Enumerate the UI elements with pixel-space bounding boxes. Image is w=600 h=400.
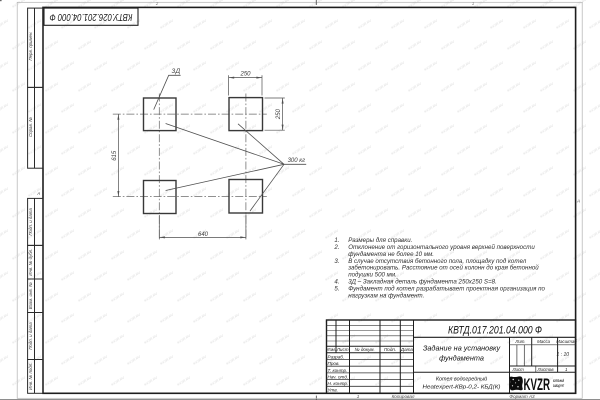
svg-text:Котел водогрейный: Котел водогрейный xyxy=(436,376,487,383)
svg-text:Перв. примен.: Перв. примен. xyxy=(28,31,33,60)
svg-text:Масштаб: Масштаб xyxy=(556,339,577,344)
svg-text:Дата: Дата xyxy=(400,347,414,352)
svg-text:Н. контр.: Н. контр. xyxy=(328,381,349,386)
svg-text:КВТД.017.201.04.000 Ф: КВТД.017.201.04.000 Ф xyxy=(448,324,542,336)
svg-text:640: 640 xyxy=(198,232,209,238)
svg-text:КВТУ.026.201.04.000 Ф: КВТУ.026.201.04.000 Ф xyxy=(49,11,132,22)
svg-text:№ докум.: № докум. xyxy=(355,347,375,352)
svg-text:Лит.: Лит. xyxy=(514,339,525,344)
svg-text:250: 250 xyxy=(276,108,282,120)
svg-text:3Д – Закладная деталь фундамен: 3Д – Закладная деталь фундамента 250х250… xyxy=(348,278,497,285)
svg-text:фундамента не более 10 мм.: фундамента не более 10 мм. xyxy=(348,251,434,258)
svg-text:Пров.: Пров. xyxy=(328,361,340,366)
svg-text:Heatexpert-КВр-0,2- КБД(К): Heatexpert-КВр-0,2- КБД(К) xyxy=(423,385,501,391)
svg-text:КОТЕЛЬНЫЙ: КОТЕЛЬНЫЙ xyxy=(553,379,564,383)
svg-text:Лист: Лист xyxy=(512,367,525,372)
svg-text:А: А xyxy=(36,191,40,196)
svg-text:Масса: Масса xyxy=(537,339,551,344)
svg-text:1: 1 xyxy=(357,394,360,399)
svg-text:Задание на установку: Задание на установку xyxy=(423,343,502,352)
svg-text:Нач. отд.: Нач. отд. xyxy=(328,374,349,379)
svg-text:Изм.: Изм. xyxy=(326,347,336,352)
svg-text:250: 250 xyxy=(239,72,251,78)
svg-text:1 : 10: 1 : 10 xyxy=(557,352,570,358)
svg-text:3Д: 3Д xyxy=(171,68,180,75)
svg-text:1: 1 xyxy=(472,1,474,6)
svg-text:Подп. и дата: Подп. и дата xyxy=(28,322,33,350)
svg-text:2.: 2. xyxy=(333,244,339,251)
svg-text:Инв. № дубл.: Инв. № дубл. xyxy=(28,249,33,276)
svg-text:Копировал: Копировал xyxy=(392,394,415,399)
svg-text:Справ. №: Справ. № xyxy=(28,117,33,137)
svg-text:615: 615 xyxy=(112,150,118,161)
svg-text:300 кг: 300 кг xyxy=(288,158,306,164)
svg-text:ЗАВОД РЭТ: ЗАВОД РЭТ xyxy=(553,384,564,388)
svg-text:KVZR: KVZR xyxy=(524,376,551,394)
svg-text:Лист: Лист xyxy=(336,347,349,352)
svg-text:Взам. инв. №: Взам. инв. № xyxy=(28,282,33,309)
svg-text:5.: 5. xyxy=(334,285,339,292)
svg-text:Т. контр.: Т. контр. xyxy=(328,368,348,373)
svg-text:нагрузкам на фундамент.: нагрузкам на фундамент. xyxy=(348,292,424,299)
svg-text:Утв.: Утв. xyxy=(328,388,338,393)
svg-text:Разраб.: Разраб. xyxy=(328,354,345,359)
svg-text:фундамента: фундамента xyxy=(439,353,484,362)
svg-text:Подп. и дата: Подп. и дата xyxy=(28,208,33,236)
svg-text:3.: 3. xyxy=(334,258,339,265)
svg-text:подушки 500 мм.: подушки 500 мм. xyxy=(348,271,397,278)
svg-text:Подп.: Подп. xyxy=(384,347,396,352)
svg-text:4.: 4. xyxy=(334,278,339,285)
svg-text:А: А xyxy=(576,199,580,204)
svg-text:Инв. № подл.: Инв. № подл. xyxy=(28,363,33,390)
svg-text:Листов: Листов xyxy=(537,367,555,372)
svg-text:Формат А3: Формат А3 xyxy=(509,394,535,399)
